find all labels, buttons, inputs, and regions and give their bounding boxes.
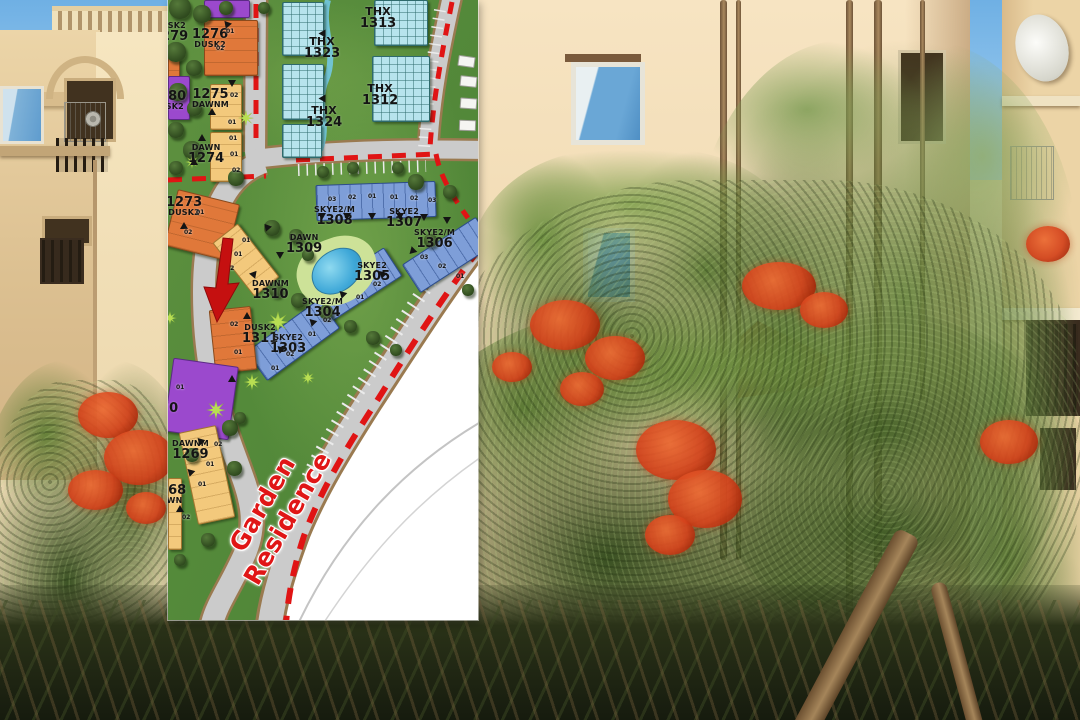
red-arrow-icon — [204, 238, 239, 322]
flame-tree-flowers — [800, 292, 848, 328]
flame-tree-flowers — [68, 470, 123, 510]
ac-unit — [64, 102, 106, 142]
window — [0, 86, 44, 144]
flame-tree-flowers — [1026, 226, 1070, 262]
flame-tree-flowers — [645, 515, 695, 555]
branches — [0, 600, 1080, 720]
flame-tree-flowers — [126, 492, 166, 524]
ac-fan — [85, 111, 101, 127]
flame-tree-flowers — [585, 336, 645, 380]
flame-tree-flowers — [560, 372, 604, 406]
floor-slab — [0, 146, 110, 156]
photo-scene: 0102020101010201020101020302010102030302… — [0, 0, 1080, 720]
site-plan-map: 0102020101010201020101020302010102030302… — [168, 0, 478, 620]
flame-tree-flowers — [980, 420, 1038, 464]
flame-tree-flowers — [492, 352, 532, 382]
window — [571, 62, 645, 145]
balcony-railing — [42, 240, 82, 282]
flame-tree-flowers — [530, 300, 600, 350]
window-lintel — [565, 54, 641, 62]
locator-arrow-layer — [168, 0, 478, 620]
